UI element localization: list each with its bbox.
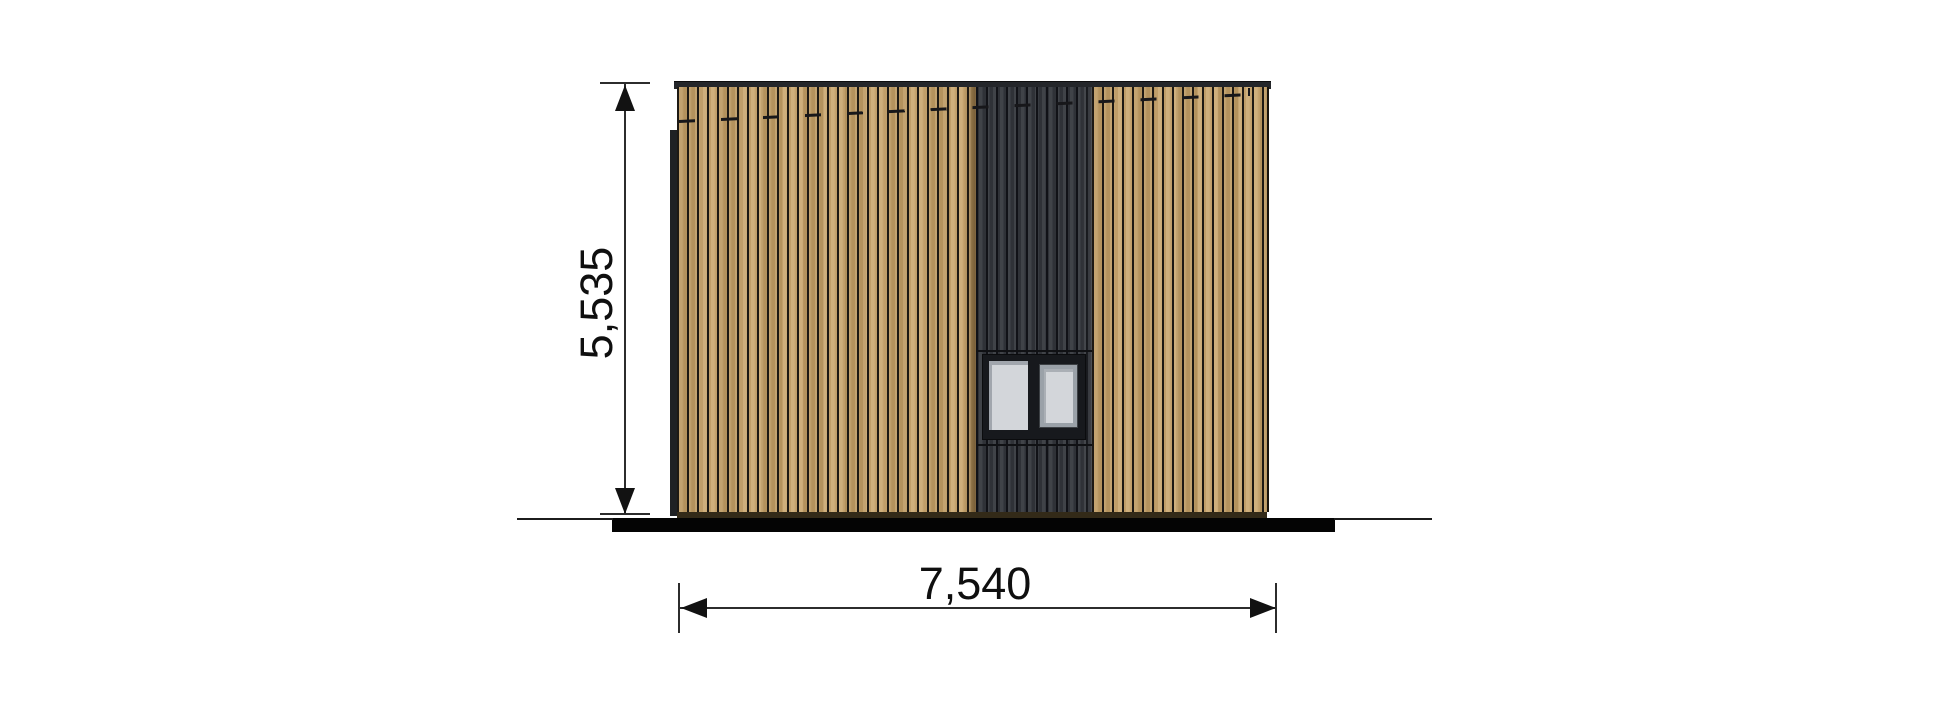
ground-line-left xyxy=(517,518,613,520)
ground-slab xyxy=(612,518,1335,532)
cladding-seam xyxy=(976,444,1092,446)
window-glass-right-pane xyxy=(1044,369,1073,423)
height-dimension-line xyxy=(624,84,626,514)
wood-slat-cladding-left xyxy=(677,87,976,512)
building-facade xyxy=(677,83,1267,515)
width-dimension-label: 7,540 xyxy=(875,561,1075,607)
window-right-casement-sash xyxy=(1039,364,1078,428)
hidden-roof-line-end-step xyxy=(1248,88,1250,96)
height-dimension-label: 5,535 xyxy=(574,223,620,383)
arrow-left-icon xyxy=(681,598,707,618)
bay-edge-highlight xyxy=(1082,87,1092,512)
bay-edge-shadow xyxy=(964,87,976,512)
arrow-right-icon xyxy=(1250,598,1276,618)
width-dimension-tick-left xyxy=(678,583,680,633)
window xyxy=(982,354,1086,440)
dark-metal-cladding-bay xyxy=(976,87,1092,512)
height-dimension-tick-top xyxy=(600,82,650,84)
elevation-drawing: 5,535 7,540 xyxy=(0,0,1946,714)
window-glass-left-pane xyxy=(989,361,1028,430)
arrow-up-icon xyxy=(615,85,635,111)
cladding-row xyxy=(677,87,1267,512)
ground-line-right xyxy=(1334,518,1432,520)
arrow-down-icon xyxy=(615,488,635,514)
cladding-seam xyxy=(976,350,1092,352)
wood-slat-cladding-right xyxy=(1092,87,1269,512)
